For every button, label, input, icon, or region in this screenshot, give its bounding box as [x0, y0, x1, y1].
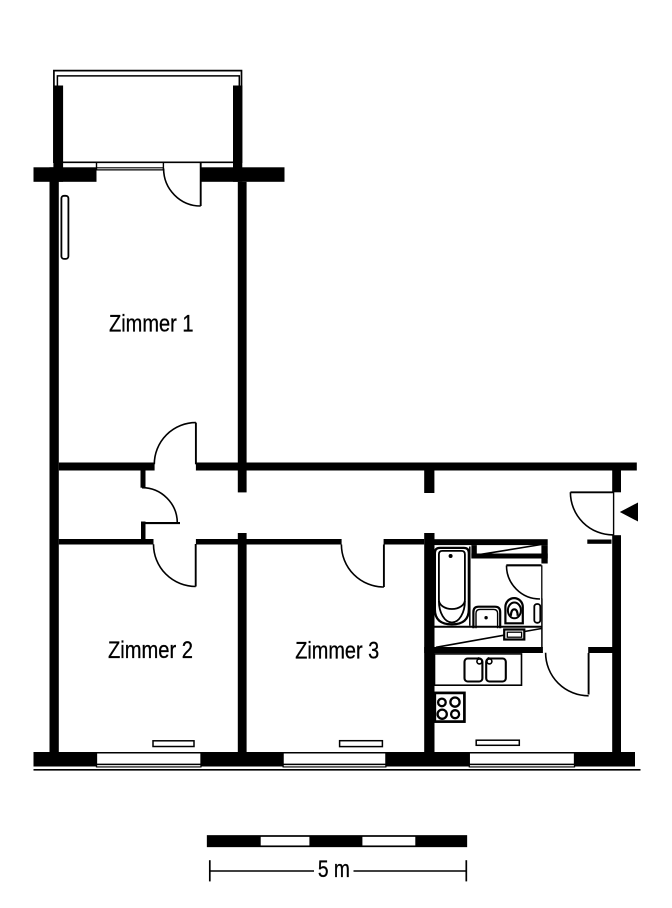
svg-text:Zimmer 2: Zimmer 2	[108, 637, 193, 664]
svg-text:5 m: 5 m	[318, 856, 350, 883]
svg-text:Zimmer 1: Zimmer 1	[109, 311, 194, 338]
svg-text:Zimmer 3: Zimmer 3	[295, 637, 379, 664]
